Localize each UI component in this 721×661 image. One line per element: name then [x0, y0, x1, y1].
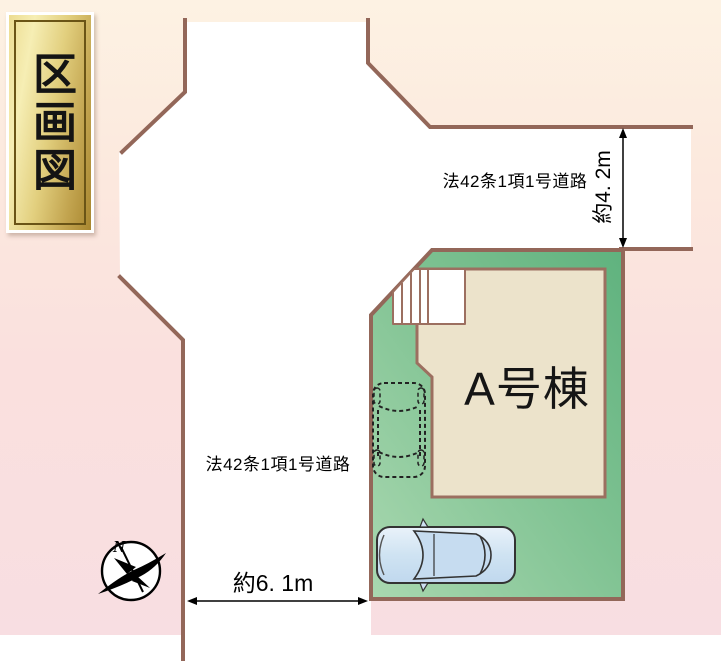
road-label-top: 法42条1項1号道路 — [430, 172, 600, 192]
road-label-left: 法42条1項1号道路 — [193, 455, 363, 475]
site-plan: 区画図 法42条1項1号道路 法42条1項1号道路 約4. 2m 約6. 1m … — [0, 0, 721, 661]
title-plaque-gold-panel: 区画図 — [9, 15, 91, 230]
compass-north-label: N — [107, 537, 131, 557]
car-top-view-icon — [377, 519, 515, 591]
dimension-left-road-width: 約6. 1m — [188, 570, 358, 598]
title-plaque: 区画図 — [6, 12, 94, 233]
building-label: A号棟 — [437, 362, 617, 417]
site-plan-canvas — [0, 0, 721, 661]
page-title: 区画図 — [28, 51, 72, 195]
dimension-top-road-width: 約4. 2m — [591, 122, 617, 252]
